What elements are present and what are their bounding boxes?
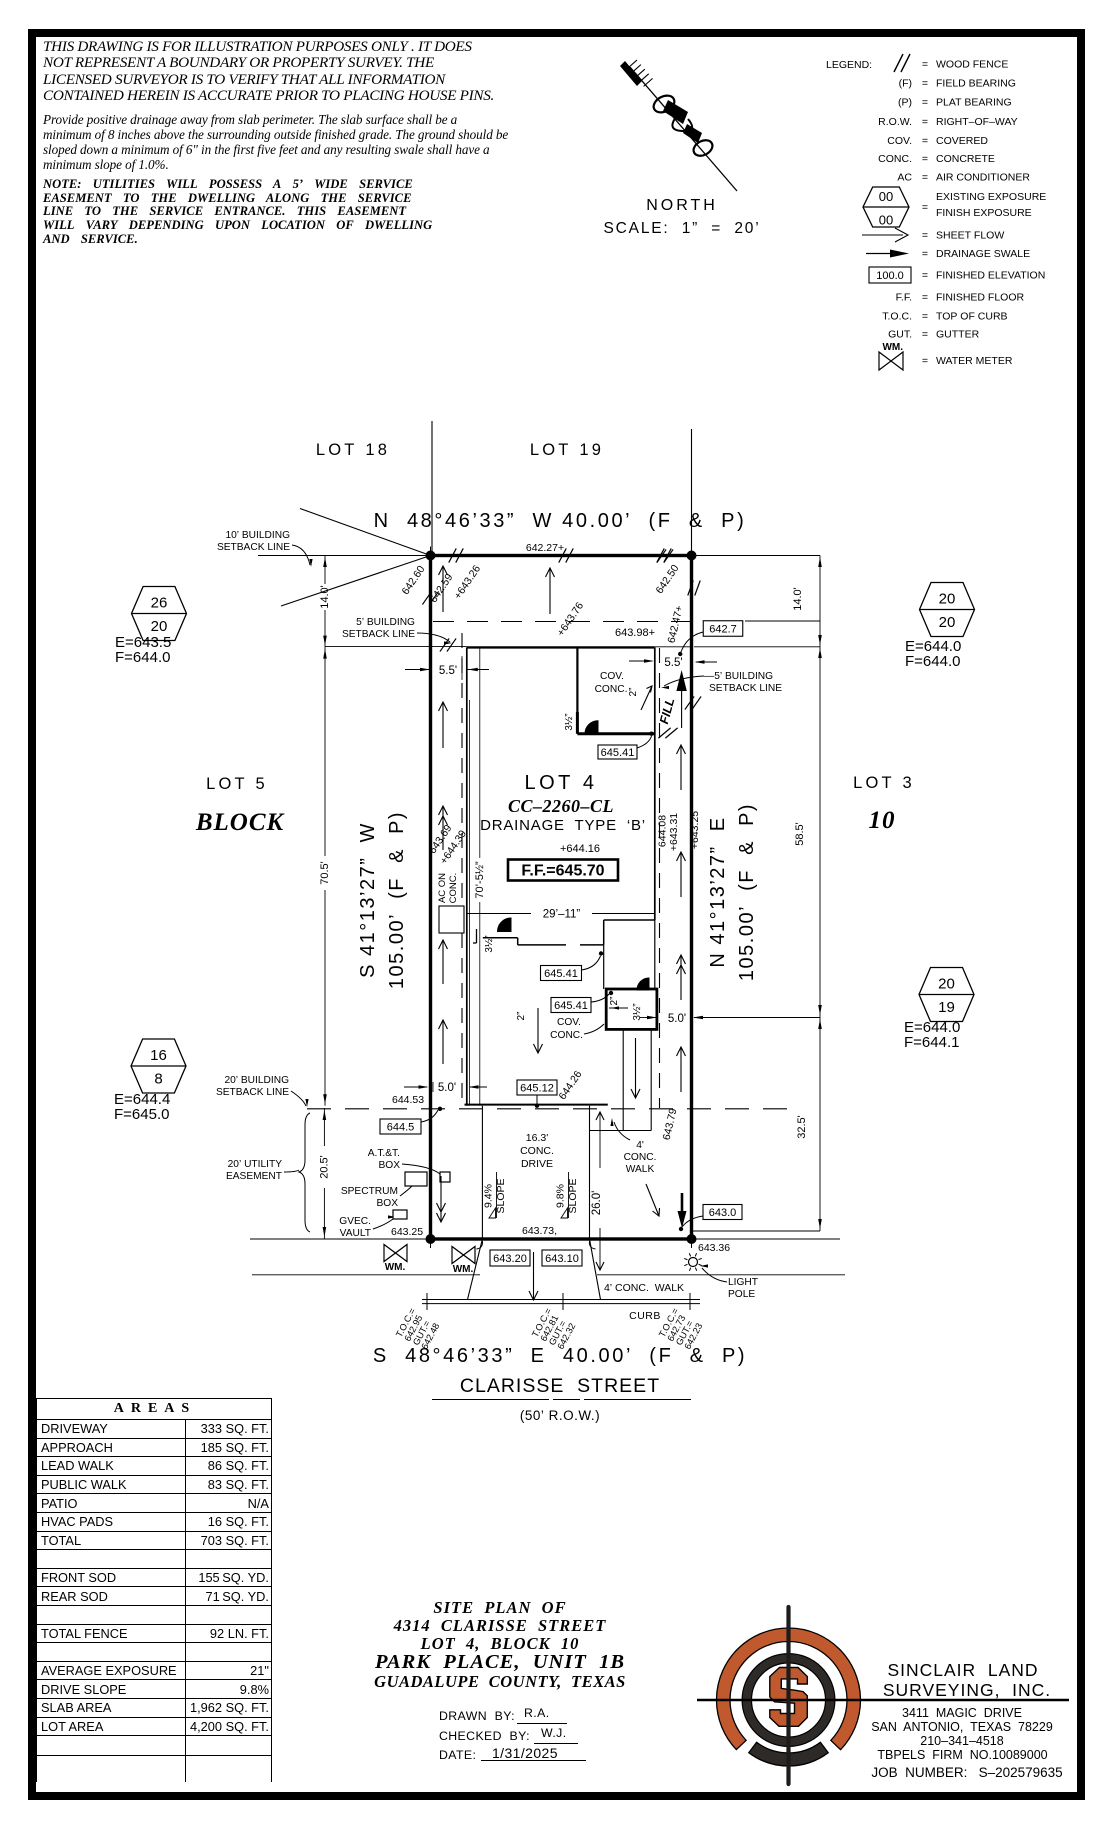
- svg-text:—5’ BUILDING: —5’ BUILDING: [704, 671, 773, 682]
- svg-text:643.36: 643.36: [698, 1242, 730, 1254]
- svg-text:+644.16: +644.16: [560, 843, 600, 855]
- svg-text:5.5': 5.5': [439, 665, 457, 677]
- svg-text:642.60: 642.60: [400, 564, 428, 597]
- svg-text:CONC.: CONC.: [595, 684, 628, 695]
- svg-text:16: 16: [150, 1047, 167, 1064]
- svg-text:A.T.&T.: A.T.&T.: [368, 1148, 400, 1159]
- svg-text:3½”: 3½”: [632, 1003, 643, 1020]
- svg-text:(F): (F): [899, 78, 912, 90]
- svg-text:BLOCK: BLOCK: [195, 809, 286, 836]
- svg-text:NORTH: NORTH: [646, 197, 718, 214]
- svg-text:=: =: [922, 59, 928, 71]
- svg-text:14.0': 14.0': [319, 585, 331, 609]
- svg-text:8: 8: [154, 1071, 162, 1088]
- svg-text:16.3': 16.3': [526, 1132, 548, 1144]
- svg-text:70.5': 70.5': [319, 861, 331, 885]
- svg-text:LOT 4: LOT 4: [524, 772, 597, 794]
- svg-text:10’ BUILDING: 10’ BUILDING: [225, 530, 290, 541]
- svg-text:20: 20: [939, 614, 956, 631]
- svg-text:FIELD BEARING: FIELD BEARING: [936, 78, 1016, 90]
- svg-text:SAN ANTONIO, TEXAS 78229: SAN ANTONIO, TEXAS 78229: [871, 1720, 1053, 1734]
- svg-text:105.00’ (F & P): 105.00’ (F & P): [736, 803, 758, 981]
- svg-text:3411 MAGIC DRIVE: 3411 MAGIC DRIVE: [902, 1706, 1022, 1720]
- svg-text:CONC.: CONC.: [448, 873, 459, 904]
- svg-text:F=644.0: F=644.0: [115, 649, 170, 666]
- svg-text:CONC.: CONC.: [520, 1145, 554, 1157]
- svg-text:4’ CONC. WALK: 4’ CONC. WALK: [604, 1282, 684, 1294]
- svg-text:14.0': 14.0': [792, 587, 804, 611]
- svg-text:643.73,: 643.73,: [522, 1225, 557, 1237]
- svg-text:CONC.: CONC.: [624, 1152, 657, 1163]
- svg-text:9.8%: 9.8%: [555, 1184, 567, 1208]
- svg-text:26: 26: [151, 595, 168, 612]
- svg-text:F.F.: F.F.: [896, 292, 912, 304]
- svg-text:644.5: 644.5: [387, 1121, 415, 1133]
- svg-text:26.0': 26.0': [591, 1191, 603, 1216]
- svg-text:R.O.W.: R.O.W.: [878, 116, 912, 128]
- svg-text:WM.: WM.: [882, 342, 903, 353]
- svg-text:2”: 2”: [609, 997, 620, 1006]
- svg-text:=: =: [922, 135, 928, 147]
- svg-text:F=645.0: F=645.0: [114, 1106, 169, 1123]
- svg-text:SURVEYING, INC.: SURVEYING, INC.: [883, 1680, 1051, 1700]
- svg-text:N 48°46’33” W 40.00’ (F &: N 48°46’33” W 40.00’ (F & P): [374, 510, 747, 532]
- svg-text:70’-5½”: 70’-5½”: [474, 861, 486, 899]
- svg-text:RIGHT–OF–WAY: RIGHT–OF–WAY: [936, 116, 1018, 128]
- svg-text:DRIVE: DRIVE: [521, 1158, 553, 1170]
- svg-text:=: =: [922, 97, 928, 109]
- svg-text:642.7: 642.7: [709, 623, 737, 635]
- svg-text:COV.: COV.: [887, 135, 912, 147]
- svg-text:=: =: [922, 311, 928, 323]
- svg-text:644.26: 644.26: [557, 1069, 585, 1102]
- svg-text:AC ON: AC ON: [437, 873, 448, 903]
- svg-text:SETBACK LINE: SETBACK LINE: [342, 629, 415, 640]
- svg-text:F.F.=645.70: F.F.=645.70: [521, 863, 604, 880]
- svg-text:100.0: 100.0: [876, 270, 904, 282]
- svg-text:=: =: [922, 116, 928, 128]
- svg-text:=: =: [922, 329, 928, 341]
- svg-text:AIR CONDITIONER: AIR CONDITIONER: [936, 172, 1030, 184]
- svg-text:N 41°13’27” E: N 41°13’27” E: [707, 816, 729, 967]
- svg-text:5.0': 5.0': [438, 1082, 456, 1094]
- svg-text:BOX: BOX: [376, 1198, 398, 1209]
- svg-text:GUT.: GUT.: [888, 329, 912, 341]
- svg-text:(P): (P): [898, 97, 912, 109]
- svg-text:20: 20: [938, 976, 955, 993]
- svg-text:CC–2260–CL: CC–2260–CL: [508, 796, 614, 816]
- svg-text:DRAINAGE TYPE ‘B’: DRAINAGE TYPE ‘B’: [480, 817, 646, 834]
- svg-text:643.10: 643.10: [545, 1253, 579, 1265]
- svg-text:DRAINAGE SWALE: DRAINAGE SWALE: [936, 248, 1030, 260]
- svg-text:POLE: POLE: [728, 1289, 755, 1300]
- svg-text:SETBACK LINE: SETBACK LINE: [216, 1087, 289, 1098]
- svg-text:643.20: 643.20: [493, 1253, 527, 1265]
- svg-text:643.0: 643.0: [709, 1207, 737, 1219]
- svg-text:PLAT BEARING: PLAT BEARING: [936, 97, 1012, 109]
- svg-text:COVERED: COVERED: [936, 135, 988, 147]
- svg-text:EASEMENT: EASEMENT: [226, 1171, 282, 1182]
- svg-text:SETBACK LINE: SETBACK LINE: [709, 683, 782, 694]
- svg-text:00: 00: [879, 189, 893, 204]
- svg-text:+643.25: +643.25: [689, 811, 701, 849]
- svg-text:58.5': 58.5': [794, 822, 806, 846]
- svg-text:644.53: 644.53: [392, 1094, 424, 1106]
- svg-text:CLARISSE STREET: CLARISSE STREET: [460, 1375, 660, 1397]
- svg-text:=: =: [922, 292, 928, 304]
- svg-text:CONC.: CONC.: [878, 153, 912, 165]
- svg-text:5’ BUILDING: 5’ BUILDING: [356, 617, 415, 628]
- svg-text:643.79: 643.79: [661, 1107, 680, 1141]
- svg-text:GVEC.: GVEC.: [339, 1216, 371, 1227]
- svg-text:32.5': 32.5': [796, 1115, 808, 1139]
- svg-text:642.27+: 642.27+: [526, 542, 564, 554]
- svg-text:644.08: 644.08: [657, 815, 669, 847]
- svg-text:SINCLAIR LAND: SINCLAIR LAND: [887, 1660, 1038, 1680]
- svg-text:SETBACK LINE: SETBACK LINE: [217, 542, 290, 553]
- svg-text:WM.: WM.: [385, 1262, 406, 1273]
- svg-text:LEGEND:: LEGEND:: [826, 59, 872, 71]
- svg-text:+643.76: +643.76: [555, 600, 586, 639]
- svg-text:TOP OF CURB: TOP OF CURB: [936, 311, 1008, 323]
- svg-text:CURB: CURB: [629, 1310, 661, 1322]
- svg-text:210–341–4518: 210–341–4518: [920, 1734, 1003, 1748]
- svg-text:SHEET FLOW: SHEET FLOW: [936, 230, 1004, 242]
- svg-text:FINISHED FLOOR: FINISHED FLOOR: [936, 292, 1025, 304]
- svg-text:LOT 18: LOT 18: [316, 441, 390, 459]
- svg-text:645.41: 645.41: [601, 747, 635, 759]
- svg-text:F=644.1: F=644.1: [904, 1034, 959, 1051]
- svg-text:642.50: 642.50: [654, 563, 682, 596]
- svg-text:FINISHED ELEVATION: FINISHED ELEVATION: [936, 270, 1045, 282]
- svg-text:19: 19: [938, 999, 955, 1016]
- svg-text:(50’ R.O.W.): (50’ R.O.W.): [520, 1408, 600, 1423]
- svg-text:645.41: 645.41: [554, 1000, 588, 1012]
- svg-text:GUTTER: GUTTER: [936, 329, 980, 341]
- svg-text:+643.31: +643.31: [668, 813, 680, 851]
- svg-text:T.O.C.: T.O.C.: [882, 311, 912, 323]
- svg-text:=: =: [922, 202, 928, 214]
- svg-text:20’ UTILITY: 20’ UTILITY: [228, 1159, 283, 1170]
- svg-text:645.12: 645.12: [520, 1082, 554, 1094]
- svg-text:JOB NUMBER: S–202579635: JOB NUMBER: S–202579635: [871, 1765, 1062, 1780]
- svg-text:COV.: COV.: [600, 671, 624, 682]
- svg-text:20: 20: [151, 618, 168, 635]
- svg-text:2”: 2”: [628, 688, 639, 697]
- svg-text:WM.: WM.: [453, 1264, 474, 1275]
- svg-text:3½”: 3½”: [564, 713, 575, 730]
- svg-text:20’ BUILDING: 20’ BUILDING: [224, 1075, 289, 1086]
- svg-text:=: =: [922, 355, 928, 367]
- svg-text:CONCRETE: CONCRETE: [936, 153, 995, 165]
- svg-text:SPECTRUM: SPECTRUM: [341, 1186, 398, 1197]
- svg-text:=: =: [922, 153, 928, 165]
- svg-text:00: 00: [879, 213, 893, 228]
- svg-text:LIGHT: LIGHT: [728, 1277, 758, 1288]
- svg-text:5.5': 5.5': [664, 657, 682, 669]
- svg-text:S 41°13’27” W: S 41°13’27” W: [357, 822, 379, 978]
- svg-text:4': 4': [636, 1140, 644, 1151]
- svg-text:=: =: [922, 270, 928, 282]
- svg-text:CONC.: CONC.: [550, 1030, 583, 1041]
- svg-text:COV.: COV.: [557, 1017, 581, 1028]
- svg-text:S 48°46’33” E 40.00’ (F &: S 48°46’33” E 40.00’ (F & P): [373, 1345, 747, 1367]
- svg-text:TBPELS FIRM NO.10089000: TBPELS FIRM NO.10089000: [877, 1748, 1047, 1762]
- svg-text:=: =: [922, 172, 928, 184]
- svg-text:=: =: [922, 248, 928, 260]
- svg-text:645.41: 645.41: [544, 968, 578, 980]
- svg-text:5.0': 5.0': [668, 1013, 686, 1025]
- svg-text:642.47+: 642.47+: [665, 604, 685, 644]
- svg-text:EXISTING EXPOSURE: EXISTING EXPOSURE: [936, 191, 1046, 203]
- svg-text:WATER METER: WATER METER: [936, 355, 1013, 367]
- svg-text:643.98+: 643.98+: [615, 627, 655, 639]
- svg-text:643.25: 643.25: [391, 1226, 423, 1238]
- svg-text:3½”: 3½”: [484, 935, 495, 952]
- svg-text:LOT 19: LOT 19: [530, 441, 604, 459]
- svg-text:FINISH EXPOSURE: FINISH EXPOSURE: [936, 207, 1032, 219]
- svg-text:VAULT: VAULT: [340, 1228, 371, 1239]
- svg-text:WALK: WALK: [626, 1164, 655, 1175]
- svg-text:LOT 3: LOT 3: [853, 774, 915, 792]
- svg-text:29’–11”: 29’–11”: [543, 909, 581, 921]
- svg-text:BOX: BOX: [378, 1160, 400, 1171]
- svg-text:LOT 5: LOT 5: [206, 775, 268, 793]
- svg-text:WOOD FENCE: WOOD FENCE: [936, 59, 1008, 71]
- svg-text:20.5': 20.5': [319, 1155, 331, 1179]
- svg-text:10: 10: [869, 807, 896, 834]
- svg-text:9.4%: 9.4%: [483, 1184, 495, 1208]
- svg-text:F=644.0: F=644.0: [905, 653, 960, 670]
- svg-text:=: =: [922, 78, 928, 90]
- svg-text:=: =: [922, 230, 928, 242]
- svg-text:2”: 2”: [516, 1012, 527, 1021]
- svg-text:+643.26: +643.26: [452, 563, 483, 602]
- svg-text:105.00’ (F & P): 105.00’ (F & P): [386, 811, 408, 989]
- svg-text:SCALE: 1” = 20’: SCALE: 1” = 20’: [604, 220, 761, 237]
- svg-text:AC: AC: [897, 172, 912, 184]
- svg-text:20: 20: [939, 591, 956, 608]
